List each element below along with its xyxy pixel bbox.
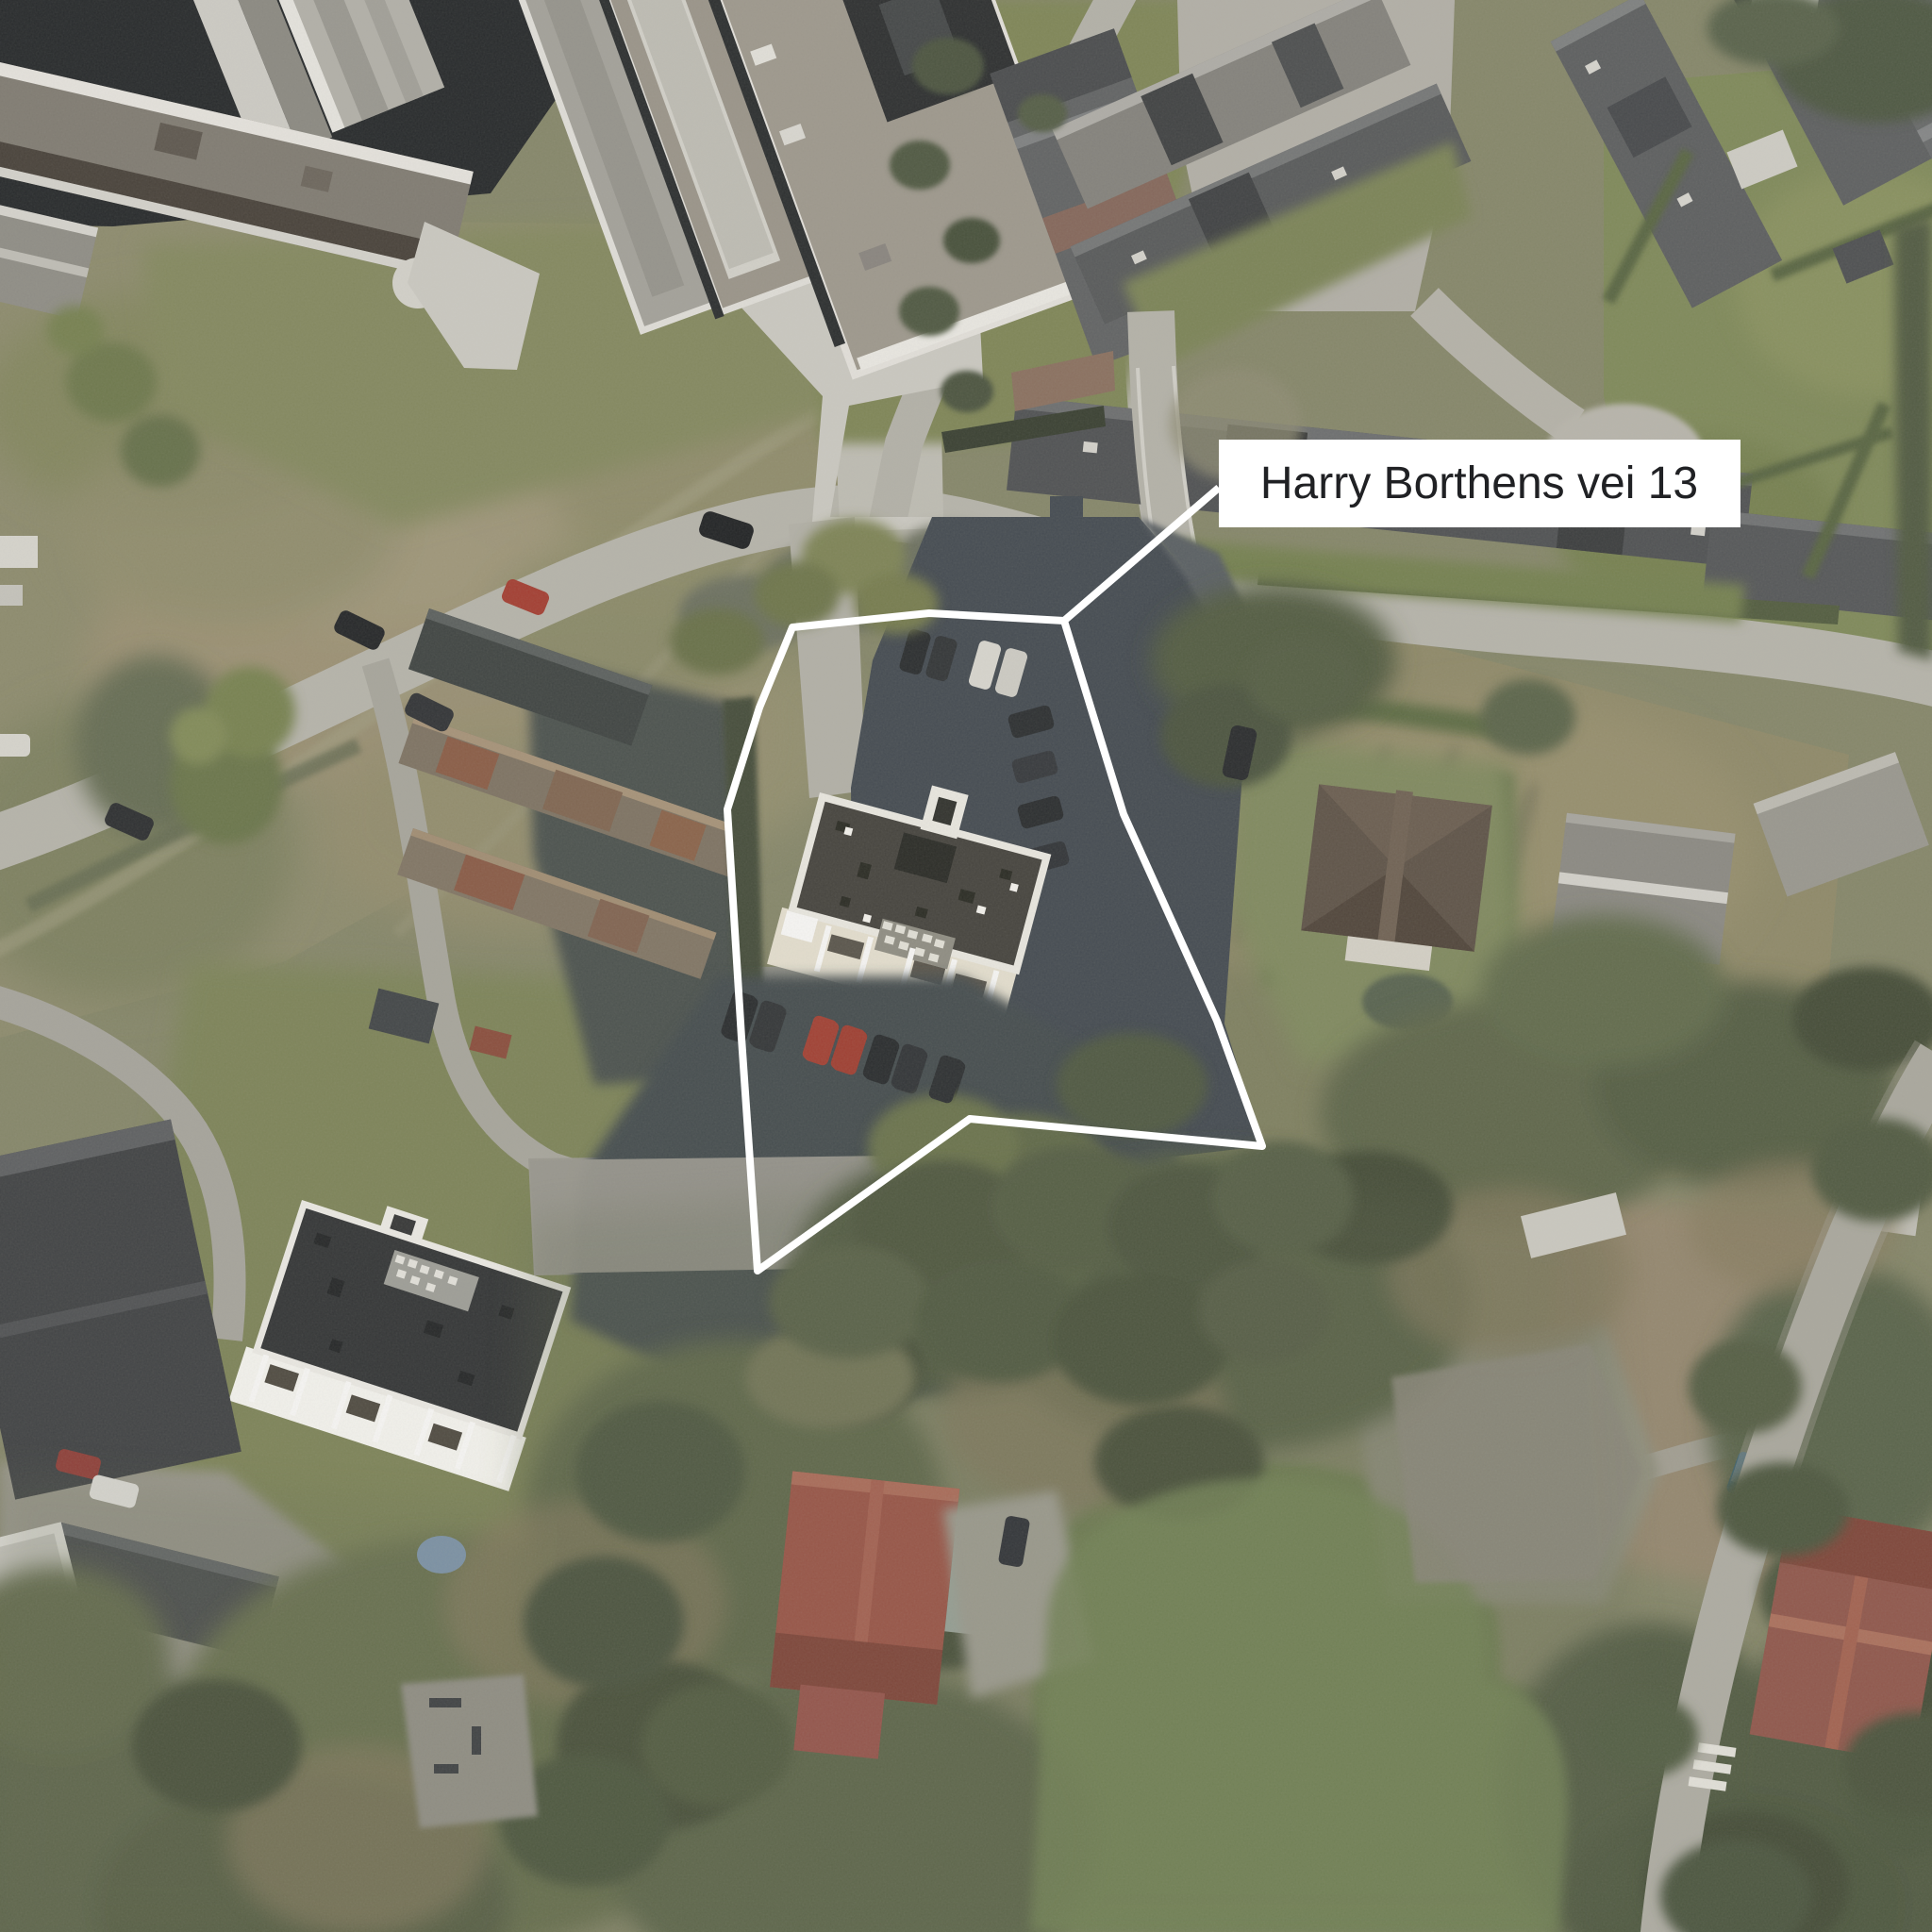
svg-text:Harry Borthens vei 13: Harry Borthens vei 13 bbox=[1260, 458, 1698, 508]
